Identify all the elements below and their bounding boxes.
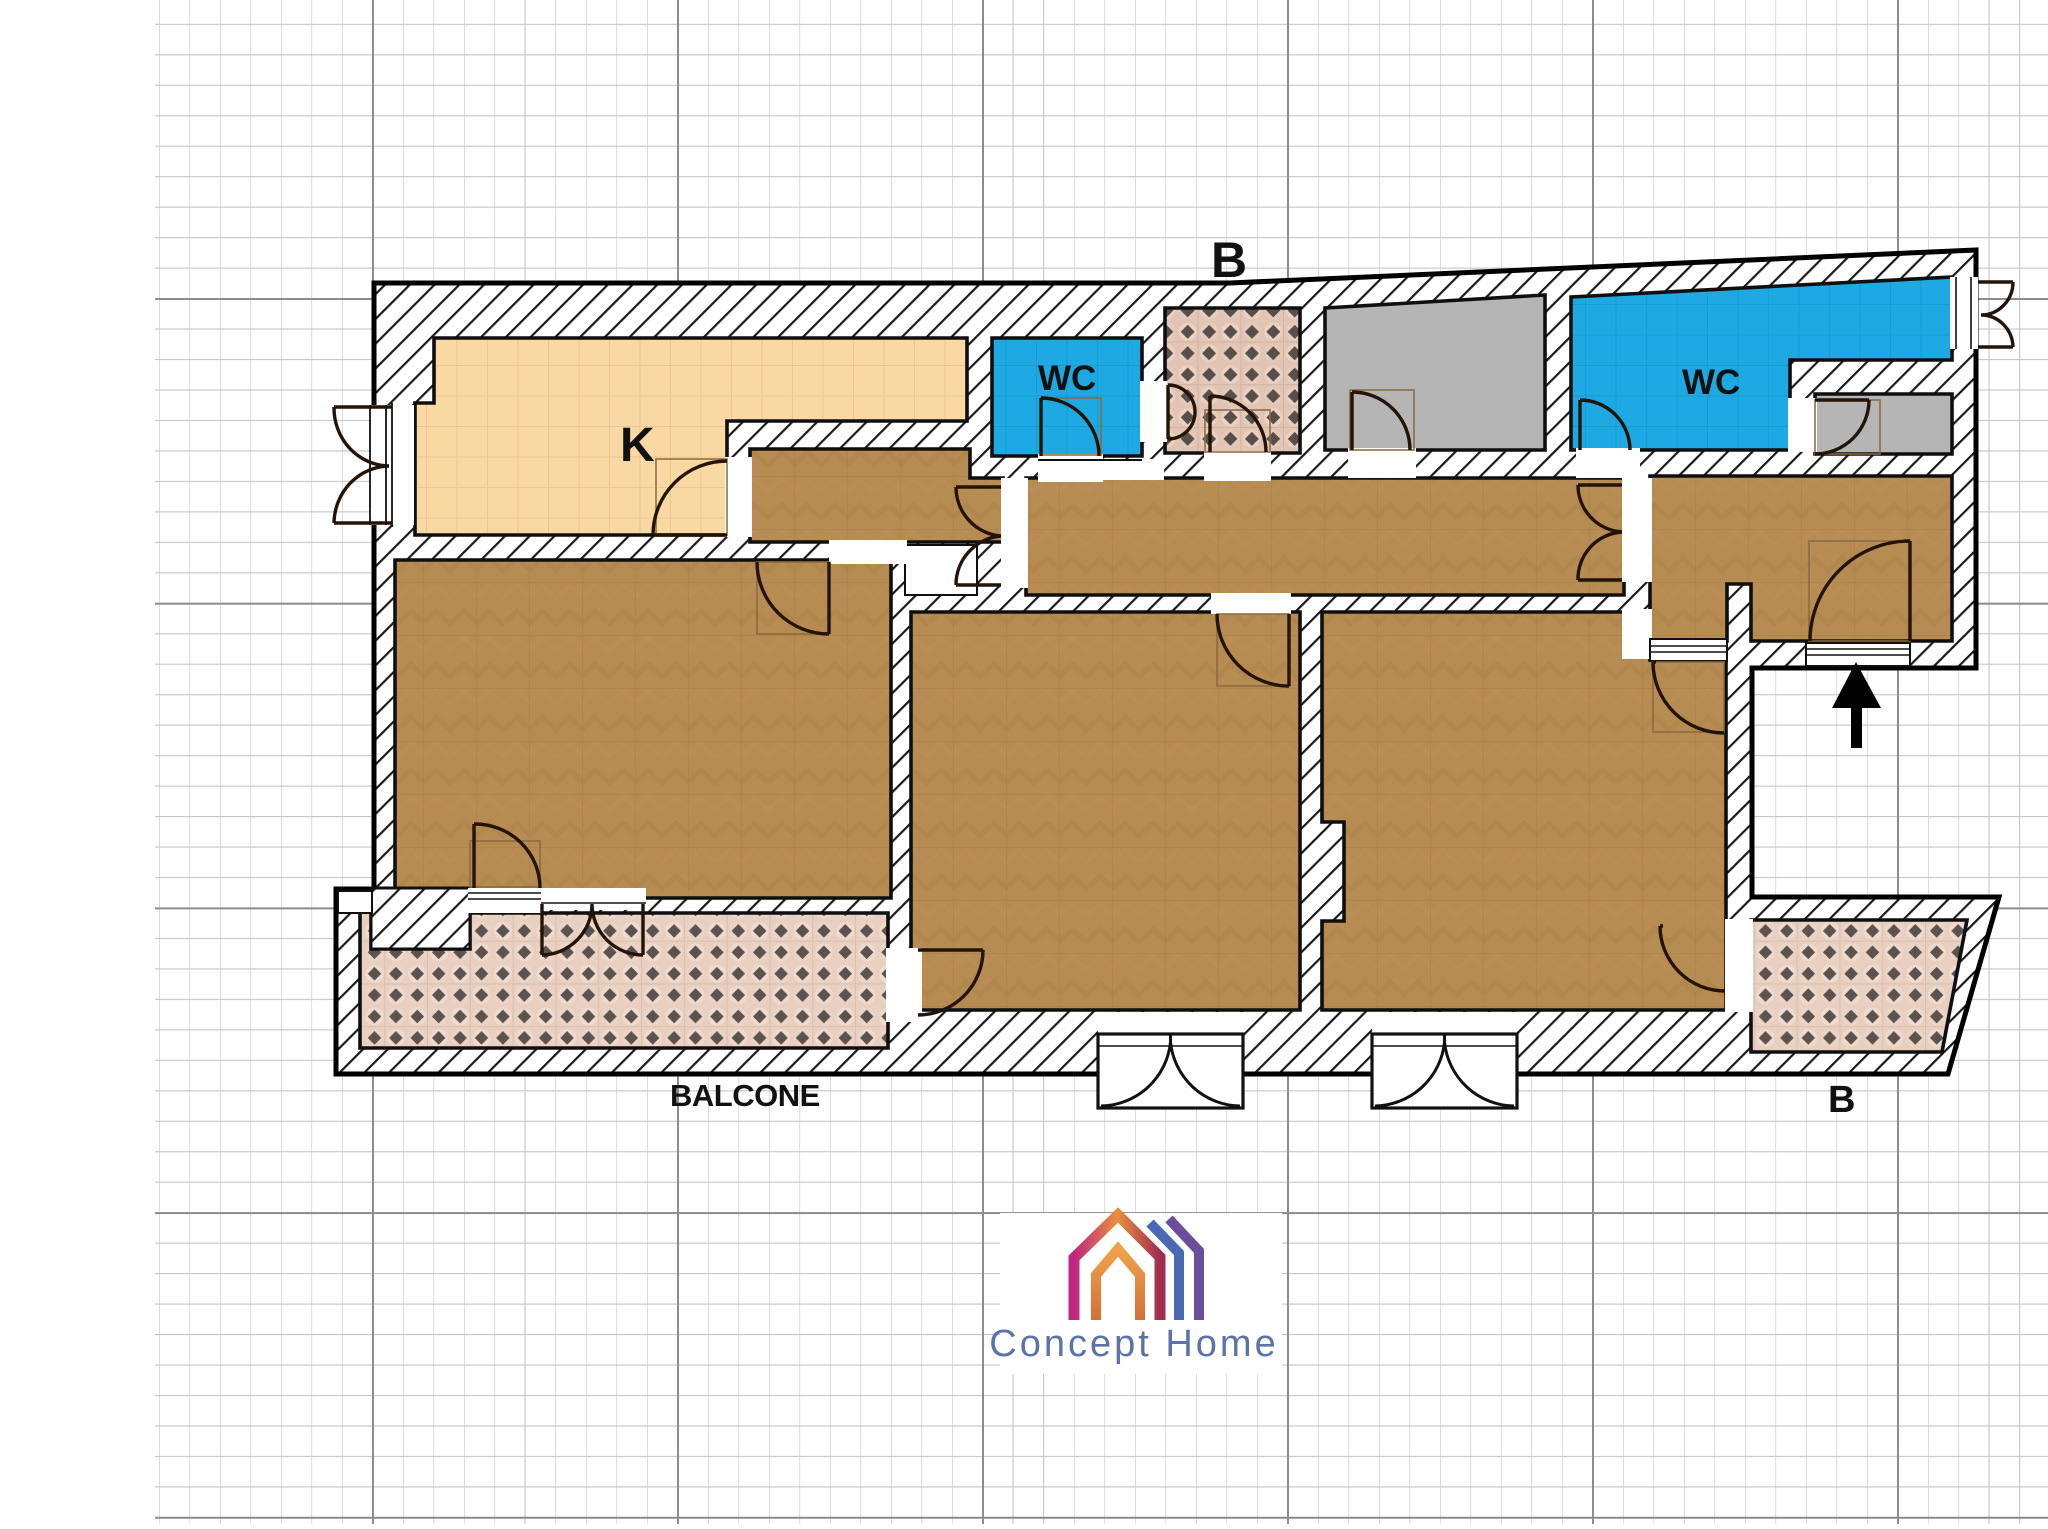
svg-text:B: B xyxy=(1211,232,1247,288)
svg-text:K: K xyxy=(620,419,655,472)
svg-text:B: B xyxy=(1828,1079,1855,1121)
svg-text:WC: WC xyxy=(1038,359,1096,398)
svg-text:Concept Home: Concept Home xyxy=(989,1323,1278,1365)
svg-text:BALCONE: BALCONE xyxy=(670,1078,820,1113)
svg-text:WC: WC xyxy=(1682,363,1740,402)
